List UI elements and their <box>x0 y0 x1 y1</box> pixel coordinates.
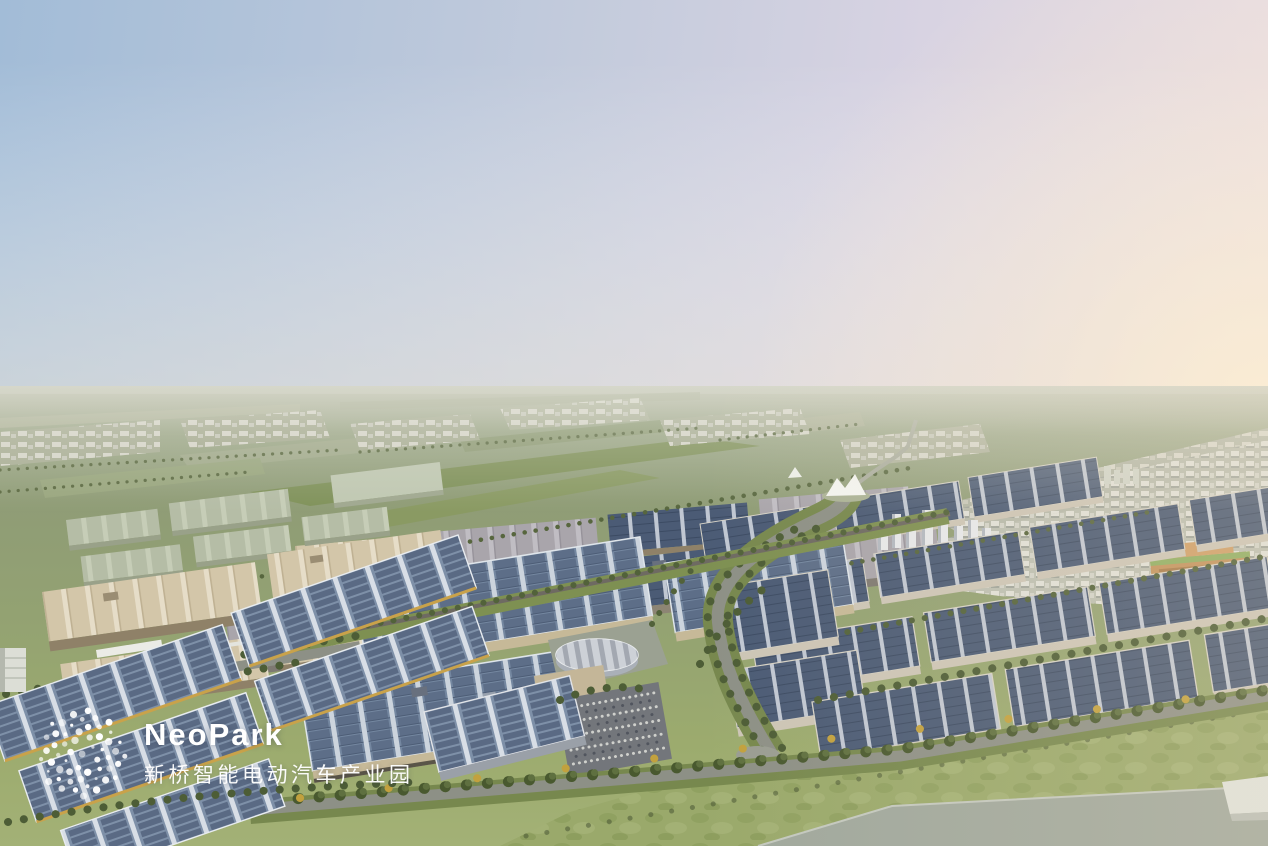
white-office-building <box>0 648 26 692</box>
logo-wordmark: NeoPark <box>144 719 414 750</box>
neopark-logo: NeoPark 新桥智能电动汽车产业园 <box>34 706 414 802</box>
sun-glow <box>0 0 1268 394</box>
dot-globe-icon <box>34 706 130 802</box>
warm-light-overlay <box>700 386 1268 846</box>
aerial-rendering-image: NeoPark 新桥智能电动汽车产业园 <box>0 0 1268 846</box>
sky <box>0 0 1268 394</box>
logo-subtitle: 新桥智能电动汽车产业园 <box>144 759 414 789</box>
